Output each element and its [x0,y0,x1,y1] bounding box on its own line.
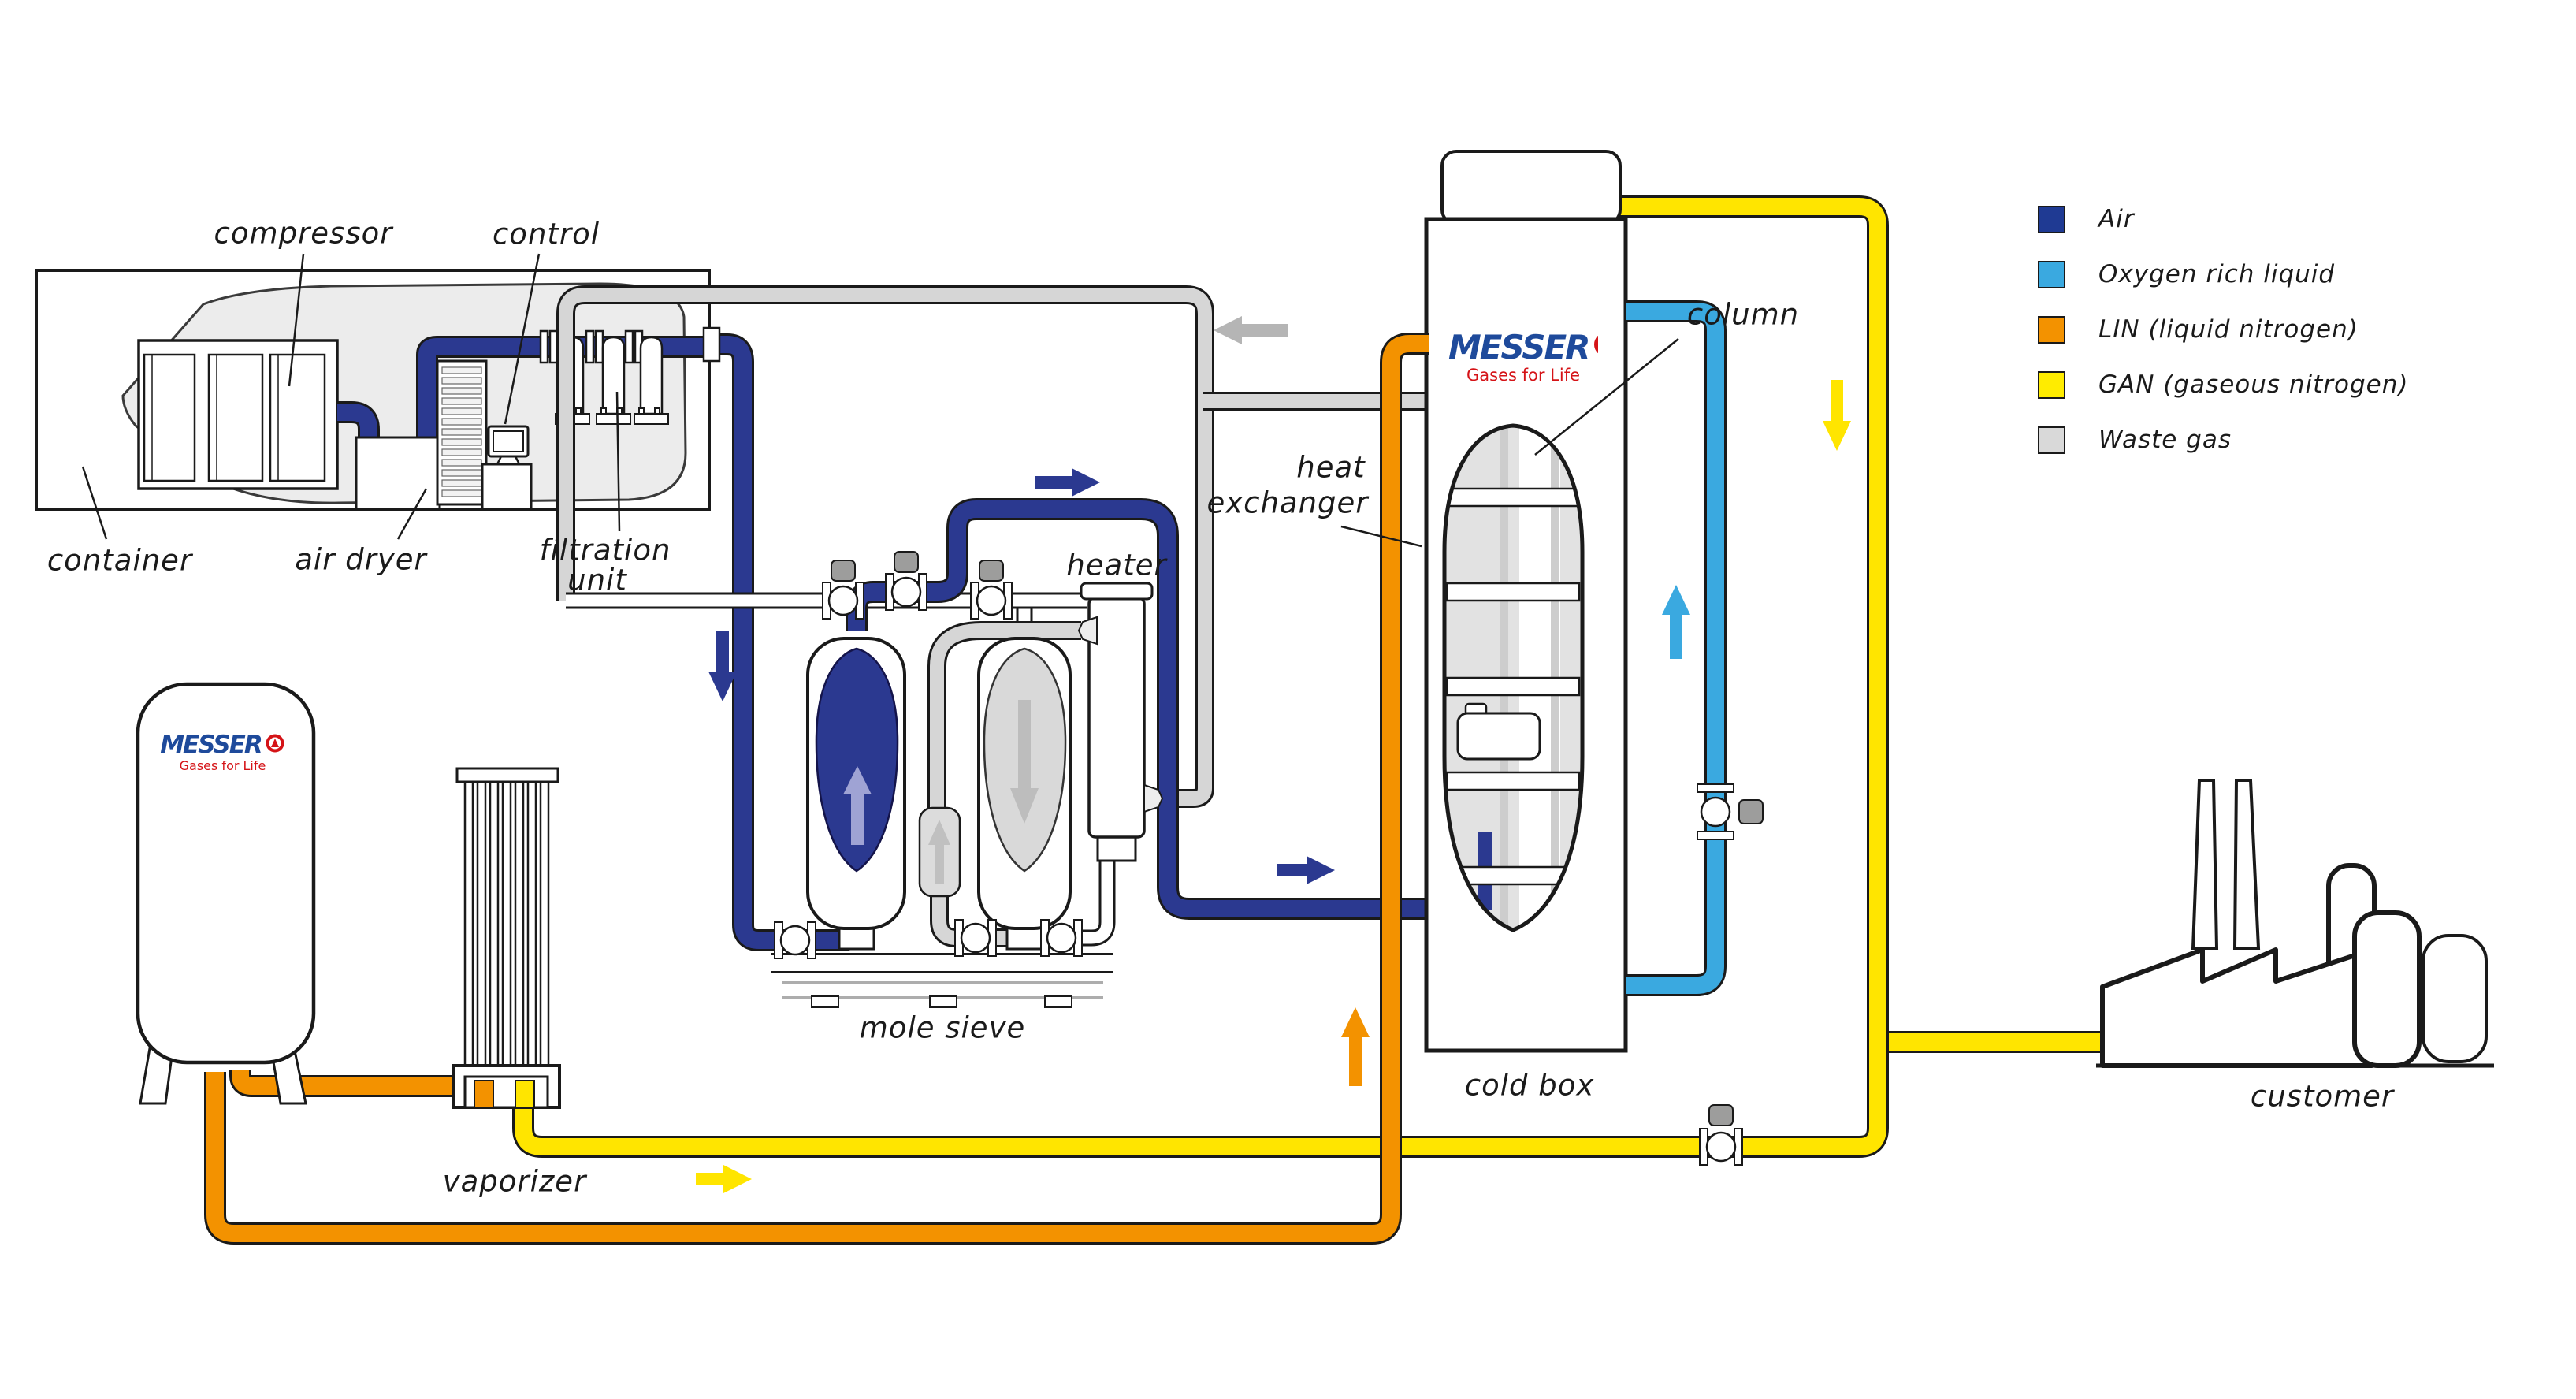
factory-chimney [2193,780,2217,948]
label-column: column [1687,298,1799,332]
label-cold-box: cold box [1465,1069,1595,1103]
legend-swatch-gan [2038,371,2065,399]
legend-swatch-waste-gas [2038,426,2065,454]
legend-row-lin: LIN (liquid nitrogen) [2038,315,2409,344]
legend-swatch-air [2038,206,2065,233]
label-container: container [47,544,192,578]
label-filtration-unit: unit [567,564,627,597]
vaporizer [453,768,559,1107]
legend-row-waste-gas: Waste gas [2038,426,2409,454]
label-heat: heat [1296,451,1365,485]
cold-box [1426,151,1626,1051]
label-control: control [493,218,600,251]
air-dryer [356,437,440,509]
legend-label-waste-gas: Waste gas [2098,426,2232,454]
air-arrow-right-bottom [1277,856,1335,884]
factory-building [2102,950,2372,1066]
label-heater: heater [1066,549,1166,582]
label-mole-sieve: mole sieve [860,1011,1025,1045]
legend-row-gan: GAN (gaseous nitrogen) [2038,370,2409,399]
lin-arrow-up [1341,1007,1370,1086]
messer-tagline: Gases for Life [1448,364,1598,387]
messer-tagline: Gases for Life [158,757,288,775]
container-outlet-stub [704,328,719,361]
heater-left-nozzle [1079,617,1097,644]
label-vaporizer: vaporizer [443,1165,587,1199]
mole-sieve-vessel-left [808,638,905,928]
messer-mark-icon [1593,331,1598,358]
label-customer: customer [2251,1080,2394,1114]
label-compressor: compressor [214,217,393,251]
label-filtration: filtration [540,534,671,567]
air-arrow-right-top [1035,468,1100,497]
messer-wordmark: MESSER [1448,331,1589,364]
oxygen-rich-pipes [1626,311,1763,985]
legend-swatch-lin [2038,316,2065,344]
legend-swatch-oxygen-rich-liquid [2038,261,2065,288]
mole-sieve-vessel-right [979,638,1070,928]
messer-wordmark: MESSER [160,733,262,757]
legend-row-air: Air [2038,205,2409,233]
legend-label-oxygen-rich-liquid: Oxygen rich liquid [2098,260,2335,288]
oxygen-arrow-up [1662,585,1690,659]
messer-logo-coldbox: MESSER Gases for Life [1448,331,1598,387]
cold-box-cap [1442,151,1620,224]
factory-tower [2355,913,2419,1066]
heater [1079,583,1162,861]
container-unit [36,270,710,509]
legend-row-oxygen-rich-liquid: Oxygen rich liquid [2038,260,2409,288]
legend-label-lin: LIN (liquid nitrogen) [2098,315,2359,344]
compressor [139,340,337,489]
gan-pipes [523,207,2106,1193]
factory-chimney [2235,780,2258,948]
legend-label-air: Air [2098,205,2135,233]
label-air-dryer: air dryer [295,543,427,577]
nitrogen-plant-diagram: compressor control container air dryer f… [0,0,2576,1399]
legend: Air Oxygen rich liquid LIN (liquid nitro… [2038,205,2409,454]
control-rack [437,361,486,504]
messer-mark-icon [265,733,285,753]
column-interior [1444,426,1582,930]
control-monitor [482,426,531,509]
label-exchanger: exchanger [1206,486,1368,520]
gan-arrow-right [696,1165,752,1193]
waste-flow-arrow-left [1214,316,1288,344]
legend-label-gan: GAN (gaseous nitrogen) [2098,370,2409,399]
mole-sieve-middle-vessel [920,808,960,896]
customer-factory [2096,780,2494,1066]
messer-logo-tank: MESSER Gases for Life [158,733,288,775]
gan-arrow-down [1823,380,1851,451]
factory-tower [2423,936,2486,1062]
